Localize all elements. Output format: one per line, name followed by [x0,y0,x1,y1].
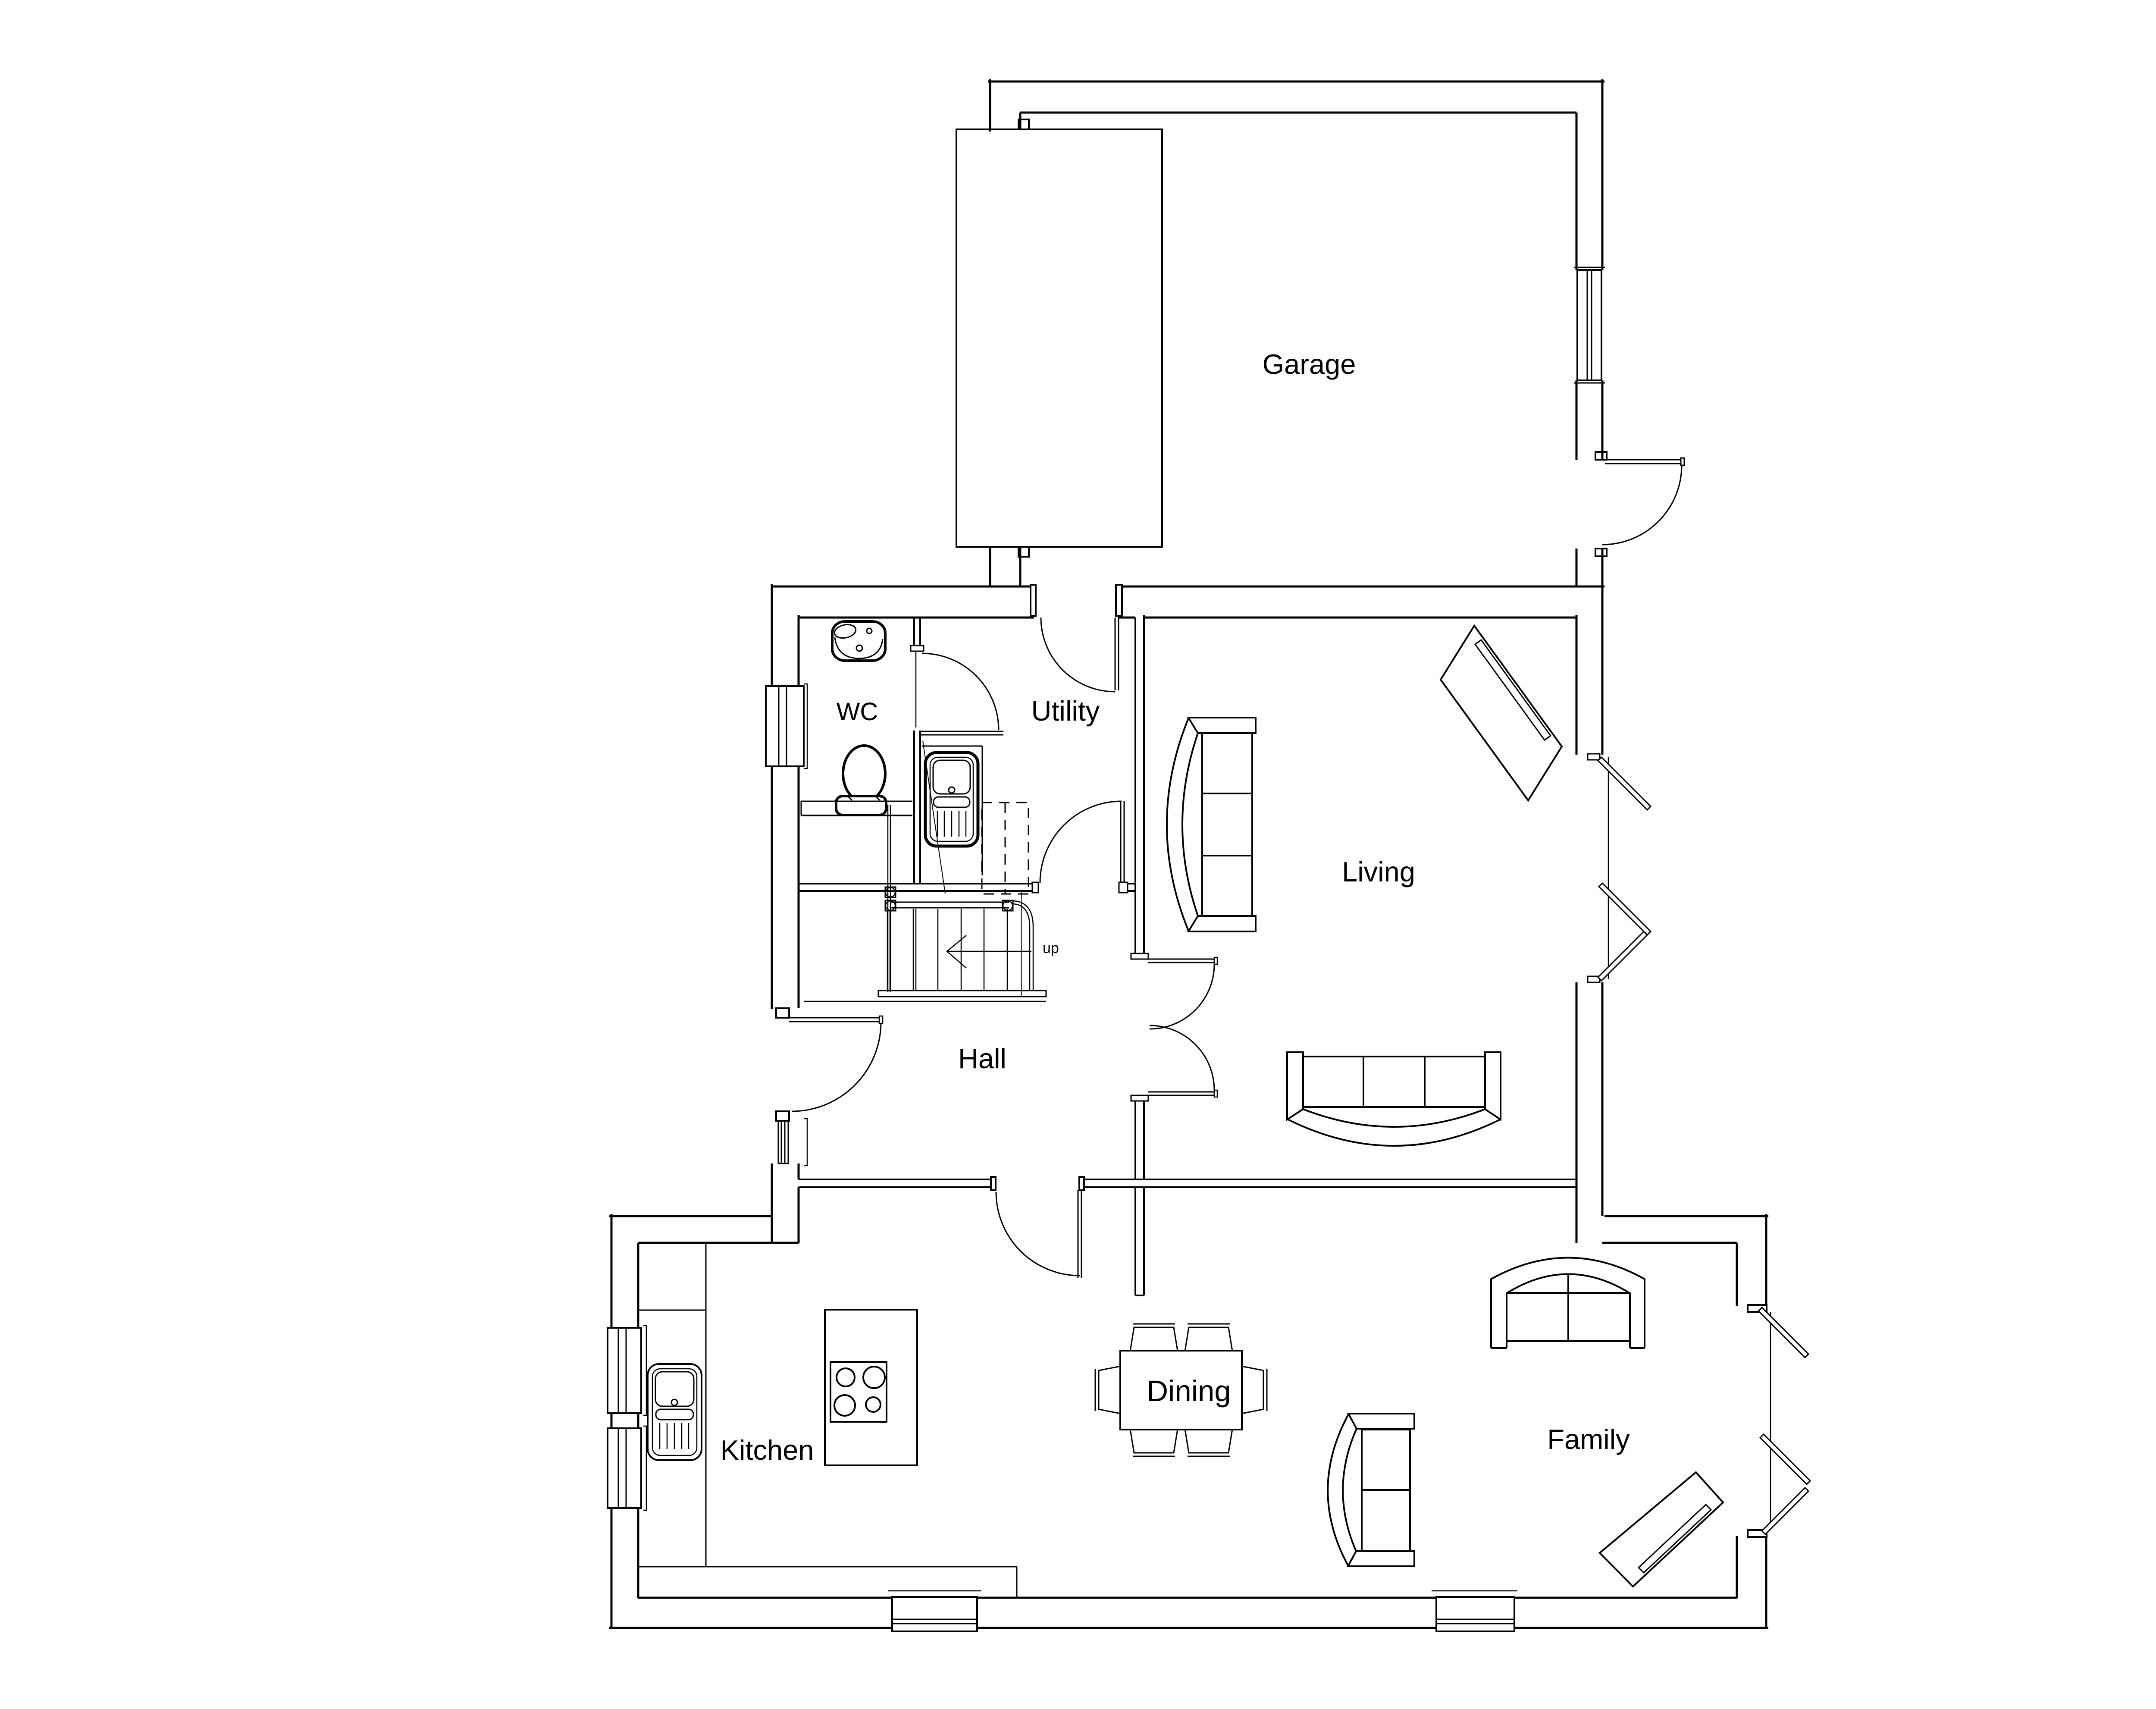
svg-text:up: up [1043,940,1059,956]
svg-text:Dining: Dining [1147,1374,1231,1408]
svg-text:Hall: Hall [958,1043,1006,1074]
svg-text:Family: Family [1547,1424,1630,1455]
svg-text:Utility: Utility [1031,695,1100,727]
svg-text:WC: WC [837,698,878,726]
svg-text:Garage: Garage [1263,348,1356,380]
svg-text:Living: Living [1342,856,1415,887]
svg-text:Kitchen: Kitchen [721,1434,814,1466]
